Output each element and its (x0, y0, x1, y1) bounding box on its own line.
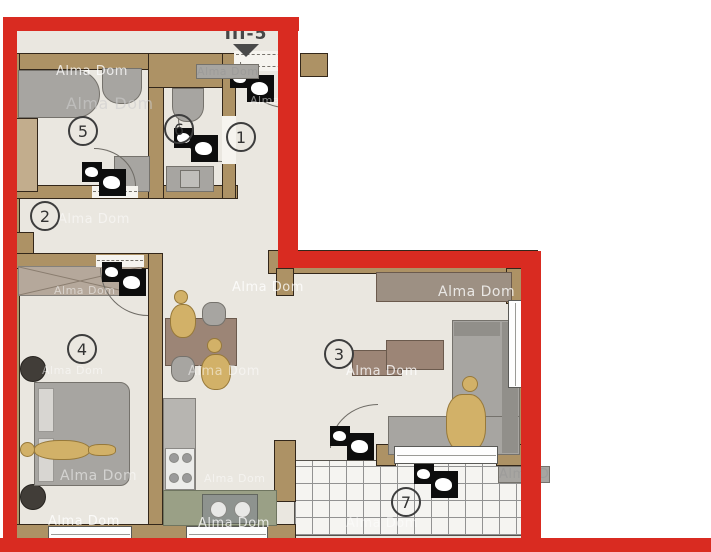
room-number-1: 1 (226, 122, 256, 152)
wall-terrace-pillar-left (274, 440, 296, 502)
room-1-label: 1 (236, 128, 246, 147)
window-living-right (508, 300, 522, 388)
floor-plan: 1 2 3 4 5 6 7 III-5 Alma Dom Alma Dom Al… (0, 0, 711, 552)
sofa-armrest (454, 322, 500, 336)
watermark: Alma Dom (58, 212, 130, 227)
watermark: Alma Dom (60, 468, 137, 484)
watermark: Alma Dom (42, 364, 103, 377)
logo-stamp-living (330, 424, 378, 464)
person-lying-on-bed (18, 428, 118, 472)
logo-stamp-terrace (414, 462, 462, 502)
room-4-label: 4 (77, 340, 87, 359)
wall-bedroom-kitchen-divider (148, 253, 163, 538)
person-at-table (162, 288, 200, 340)
room-number-5: 5 (68, 116, 98, 146)
plant-pot (20, 484, 46, 510)
chair (202, 302, 226, 326)
person-on-sofa (428, 368, 492, 458)
toilet-seat (180, 170, 200, 188)
watermark: Alma Dom (438, 284, 515, 300)
red-outline-mid (278, 251, 540, 268)
room-number-4: 4 (67, 334, 97, 364)
red-outline-top (3, 17, 299, 31)
red-outline-left (3, 17, 17, 548)
watermark: Alma Dom (56, 64, 128, 79)
person-at-table (193, 334, 235, 392)
watermark: Alma Dom (346, 364, 418, 379)
room-number-2: 2 (30, 201, 60, 231)
red-outline-bottom (0, 538, 711, 552)
room-3-label: 3 (334, 345, 344, 364)
stove (165, 448, 195, 490)
watermark: Alma Dom (204, 472, 265, 485)
logo-stamp-bathroom (82, 160, 130, 200)
red-outline-upper-right (278, 17, 298, 265)
entrance-arrow-icon (233, 44, 259, 57)
watermark: Alma Dom (196, 64, 259, 79)
watermark: Alma Dom (346, 516, 418, 531)
room-7-label: 7 (401, 493, 411, 512)
watermark: Alma Dom (66, 94, 154, 113)
watermark: Alma Dom (188, 364, 260, 379)
watermark: Alma Dom (48, 514, 120, 529)
watermark: Alma Dom (232, 280, 304, 295)
red-outline-right (521, 251, 541, 552)
watermark: Alma Dom (54, 284, 115, 297)
room-6-label: 6 (174, 120, 184, 139)
room-number-6: 6 (164, 114, 194, 144)
watermark: Alma Dom (198, 516, 270, 531)
room-2-label: 2 (40, 207, 50, 226)
room-5-label: 5 (78, 122, 88, 141)
pillow (38, 388, 54, 432)
room-number-7: 7 (391, 487, 421, 517)
bathroom-cabinet (16, 118, 38, 192)
wall-stub-outside (300, 53, 328, 77)
